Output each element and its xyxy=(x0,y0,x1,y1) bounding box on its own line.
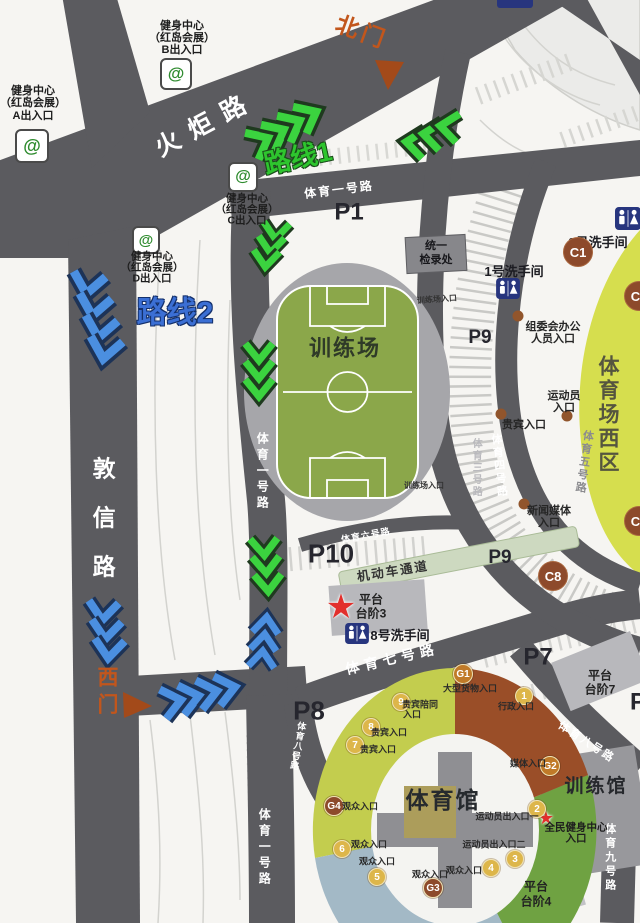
restroom-icon xyxy=(496,278,520,304)
gym-gate-3: 3 xyxy=(506,850,524,868)
parking-p9-south: P9 xyxy=(488,548,511,568)
gymnasium-label: 体育馆 xyxy=(406,788,481,812)
fitness-exit-b-sub: （红岛会展） xyxy=(149,33,215,45)
parking-p10: P10 xyxy=(308,540,354,567)
committee-entrance-line1: 组委会办公 xyxy=(526,322,581,334)
road-label-dunxin: 敦信路 xyxy=(90,457,114,604)
fitness-exit-a-label: A出入口 xyxy=(13,111,54,123)
platform3-line2: 台阶3 xyxy=(356,608,387,621)
training-hall-label: 训练馆 xyxy=(564,777,627,797)
gym-gate-9-label-line2: 入口 xyxy=(403,710,421,719)
press-entrance-line1: 新闻媒体 xyxy=(527,506,571,518)
gym-gate-4: 4 xyxy=(482,859,500,877)
gym-gate-g1-label: 大型货物入口 xyxy=(443,684,497,693)
gym-gate-g2-label: 媒体入口 xyxy=(510,759,546,768)
check-in-line2: 检录处 xyxy=(420,255,453,267)
platform3-line1: 平台 xyxy=(359,594,383,607)
fitness-exit-c-label: C出入口 xyxy=(227,215,266,226)
vip-entrance-label: 贵宾入口 xyxy=(502,420,546,432)
entrance-dot xyxy=(513,311,524,322)
restroom-icon xyxy=(615,207,640,235)
west-gate-label: 西门 xyxy=(95,666,117,720)
road-label-tiyu1-mid: 体育一号路 xyxy=(256,432,269,512)
gym-gate-g1: G1 xyxy=(453,664,473,684)
fitness-center-entrance-line2: 入口 xyxy=(566,833,587,844)
parking-p-edge: P xyxy=(630,689,640,714)
gate-badge-c1: C1 xyxy=(563,237,593,267)
restroom-icon xyxy=(345,623,369,649)
platform7-line2: 台阶7 xyxy=(585,684,616,697)
restroom-8-label: 8号洗手间 xyxy=(370,629,429,643)
platform4-line1: 平台 xyxy=(524,881,548,894)
gym-gate-8-label: 贵宾入口 xyxy=(371,728,407,737)
road-label-tiyu3: 体育三号路 xyxy=(470,438,481,498)
metro-icon: @ xyxy=(228,162,258,192)
check-in-line1: 统一 xyxy=(425,241,447,253)
gym-gate-g3: G3 xyxy=(423,878,443,898)
clipped-sign xyxy=(497,0,533,8)
athlete-entrance-line1: 运动员 xyxy=(548,391,581,403)
metro-icon: @ xyxy=(160,58,192,90)
route2-label: 路线2 xyxy=(137,297,214,329)
gym-gate-5: 5 xyxy=(368,868,386,886)
training-field-gate-bottom: 训练场入口 xyxy=(404,482,444,490)
press-entrance-line2: 入口 xyxy=(538,518,560,530)
gym-gate-6: 6 xyxy=(333,840,351,858)
road-label-tiyu1-bottom: 体育一号路 xyxy=(258,808,271,888)
gym-gate-5-label: 观众入口 xyxy=(359,857,395,866)
entrance-dot xyxy=(496,409,507,420)
parking-p1: P1 xyxy=(334,199,363,224)
gym-gate-6-label: 观众入口 xyxy=(351,840,387,849)
gym-gate-1-label: 行政入口 xyxy=(498,702,534,711)
campus-map: 健身中心 （红岛会展） A出入口 @ 健身中心 （红岛会展） B出入口 @ @ … xyxy=(0,0,640,923)
fitness-exit-d-label: D出入口 xyxy=(132,273,171,284)
destination-star: ★ xyxy=(326,590,356,624)
fitness-exit-a-sub: （红岛会展） xyxy=(0,98,66,110)
gym-gate-3-label: 运动员出入口二 xyxy=(462,840,525,849)
athlete-entrance-line2: 入口 xyxy=(553,403,575,415)
committee-entrance-line2: 人员入口 xyxy=(531,334,575,346)
gym-gate-7-label: 贵宾入口 xyxy=(360,745,396,754)
restroom-1-label: 1号洗手间 xyxy=(484,265,543,279)
parking-p9-north: P9 xyxy=(468,328,491,348)
training-field-label: 训练场 xyxy=(309,336,381,359)
gym-gate-g3-label: 观众入口 xyxy=(412,870,448,879)
metro-icon: @ xyxy=(15,129,49,163)
fitness-exit-a-name: 健身中心 xyxy=(11,86,55,98)
gate-badge-c8: C8 xyxy=(538,561,568,591)
fitness-exit-b-label: B出入口 xyxy=(162,45,203,57)
gym-gate-4-label: 观众入口 xyxy=(446,866,482,875)
gym-gate-g4-label: 观众入口 xyxy=(342,802,378,811)
platform4-line2: 台阶4 xyxy=(521,896,552,909)
fitness-exit-b-name: 健身中心 xyxy=(160,21,204,33)
stadium-west-zone-label: 体育场西区 xyxy=(596,355,618,475)
gym-gate-2-label: 运动员出入口一 xyxy=(475,812,538,821)
parking-p8: P8 xyxy=(293,697,325,724)
parking-p7: P7 xyxy=(523,644,552,669)
platform7-line1: 平台 xyxy=(588,670,612,683)
